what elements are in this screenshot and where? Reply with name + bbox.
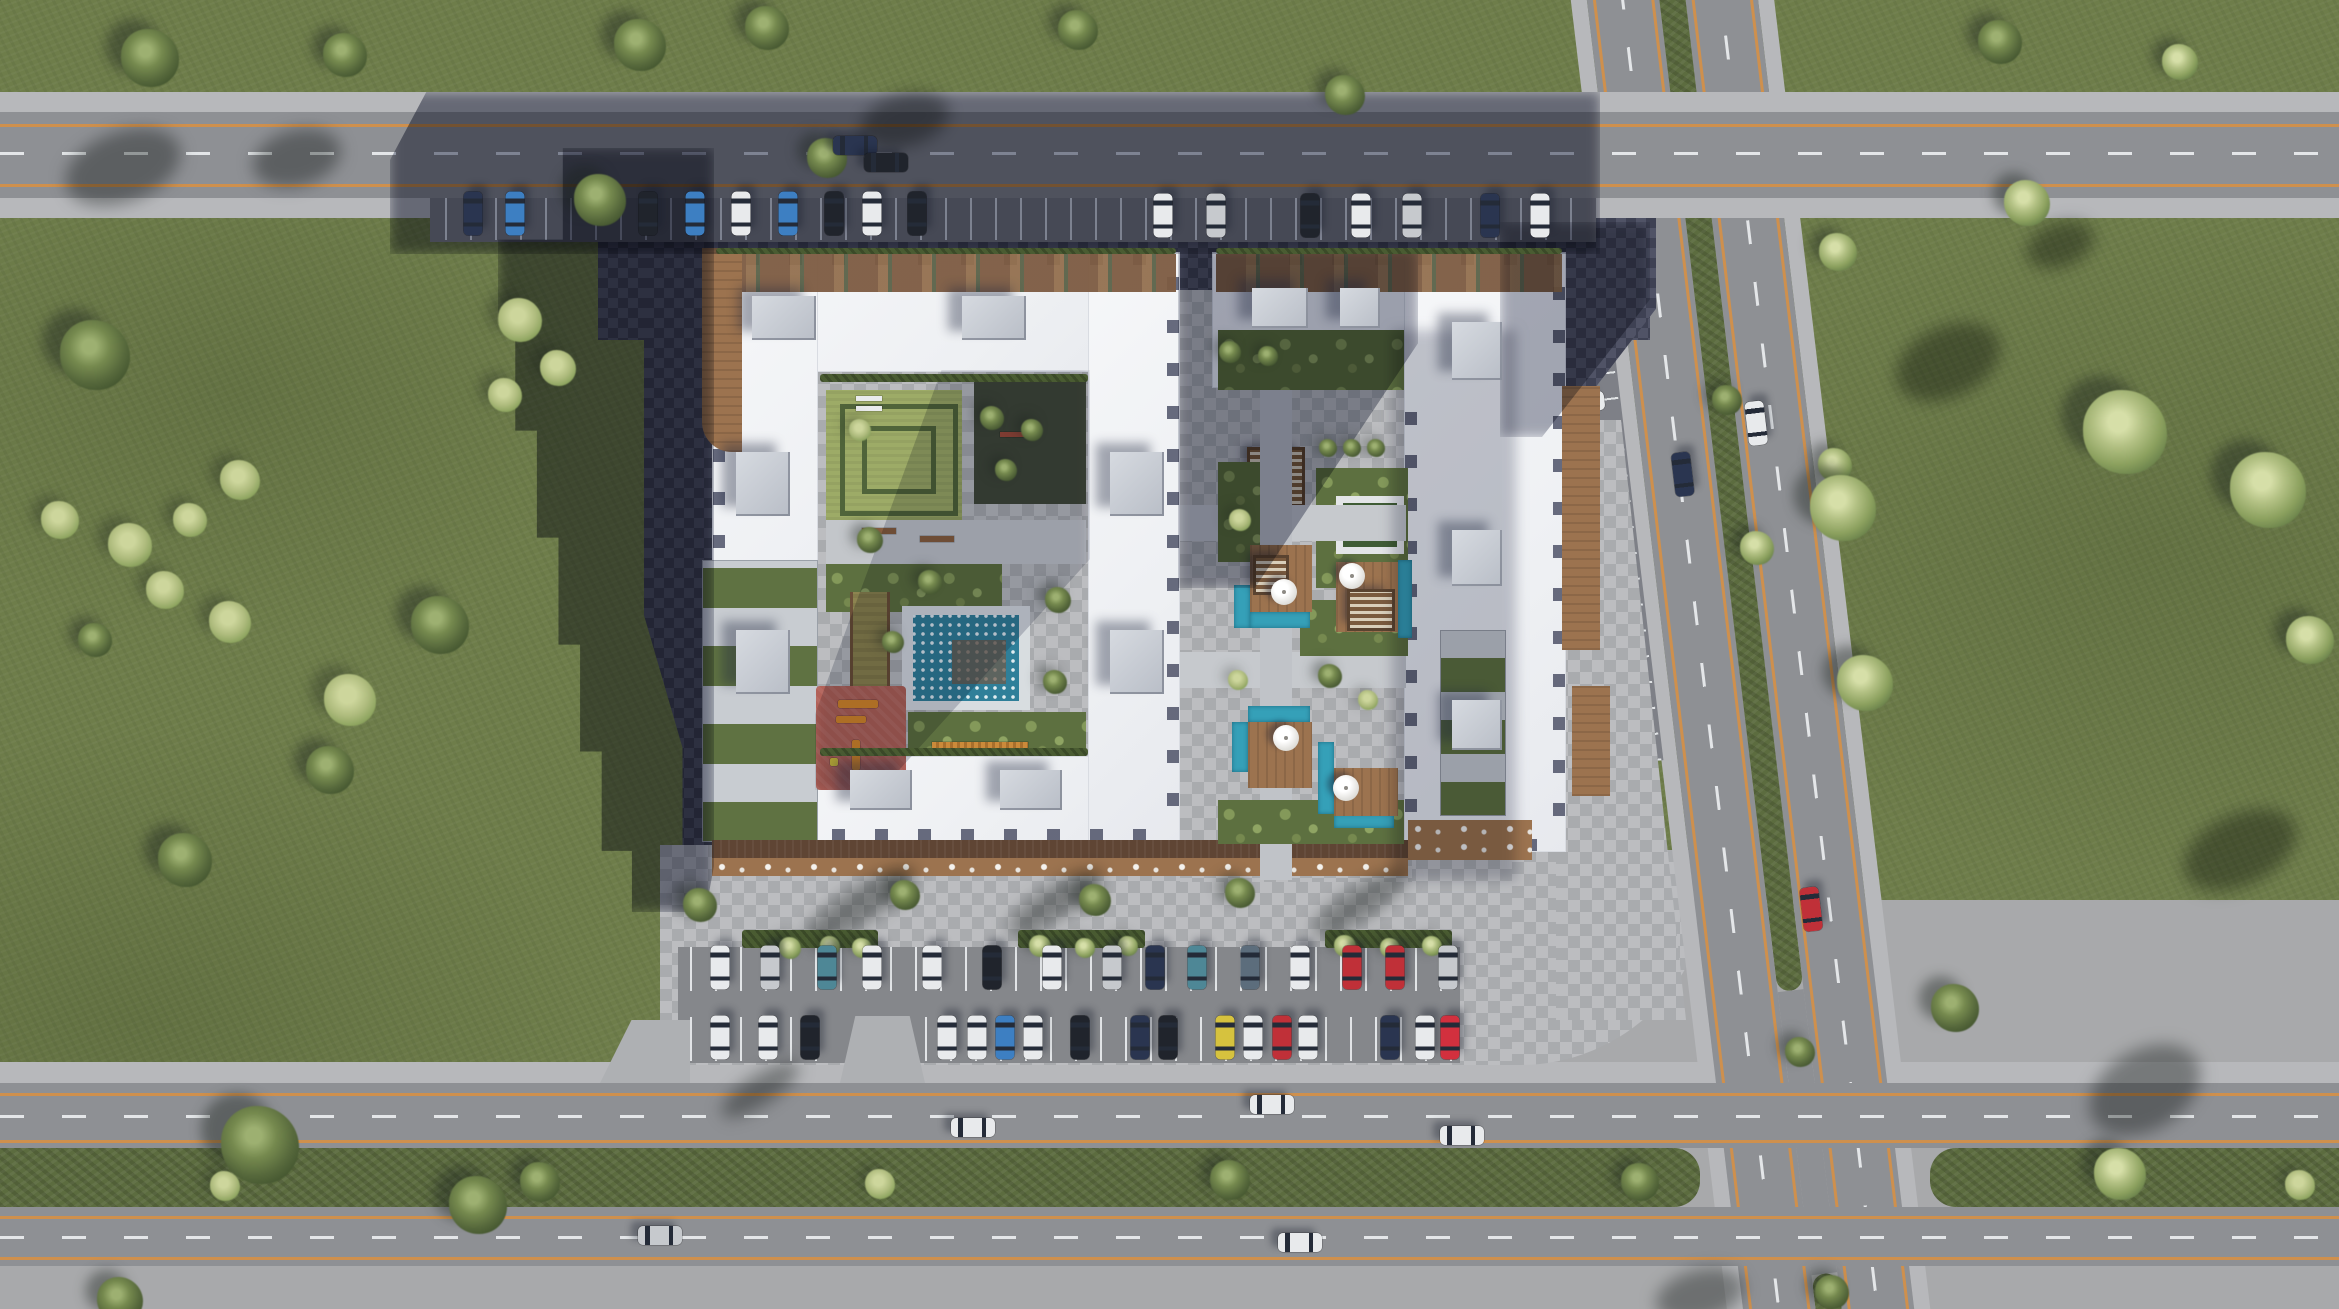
patio-pool [1318,742,1334,814]
bottom-pavement-strip [0,1266,2339,1309]
tree [60,320,130,390]
tree [2230,452,2306,528]
building-shadow-west [498,148,714,912]
left-building-north-terraces [716,254,1176,292]
car [1250,1095,1294,1114]
tree [1810,475,1876,541]
rooftop-bulkhead [1452,700,1502,750]
tree [2162,44,2198,80]
car [1207,194,1226,238]
rooftop-bulkhead [962,296,1026,340]
patio-umbrella [1339,563,1365,589]
bush [849,419,871,441]
tree [1819,233,1857,271]
car [863,946,882,990]
bush [108,523,152,567]
tree-shadow [1883,307,2012,417]
bush [540,350,576,386]
car [1381,1016,1400,1060]
tree [323,33,367,77]
rooftop-bulkhead [1110,452,1164,516]
bush [865,1169,895,1199]
car [825,192,844,236]
bush [41,501,79,539]
car [951,1118,995,1137]
car [639,192,658,236]
rooftop-bulkhead [1110,630,1164,694]
top-road-south-sidewalk-east [1596,198,2339,218]
rooftop-bulkhead [752,296,816,340]
tree [2094,1148,2146,1200]
tree [1210,1160,1250,1200]
car [1439,946,1458,990]
tree [1021,419,1043,441]
tree [78,623,112,657]
bush [2285,1170,2315,1200]
tree [1931,984,1979,1032]
car [1481,194,1500,238]
tree [1319,439,1337,457]
car [1291,946,1310,990]
lane-line [0,1257,2339,1260]
tree [1258,346,1278,366]
car [1386,946,1405,990]
car [863,192,882,236]
tree-shadow [2171,793,2309,907]
car [1071,1016,1090,1060]
car [1278,1233,1322,1252]
hedge-strip [820,374,1088,382]
tree [1978,20,2022,64]
rooftop-bulkhead [1000,770,1062,810]
tree [1325,75,1365,115]
bush [220,460,260,500]
patio-pergola [1350,592,1392,628]
rooftop-bulkhead [1452,322,1502,380]
bush [146,571,184,609]
car [1216,1016,1235,1060]
tree [2286,616,2334,664]
tree [1712,385,1742,415]
bush [324,674,376,726]
central-walk-lower [1180,652,1406,688]
patio-pool [1248,706,1310,722]
car [801,1016,820,1060]
tree [1043,670,1067,694]
car [983,946,1002,990]
car [761,946,780,990]
patio-umbrella [1271,579,1297,605]
car [1159,1016,1178,1060]
car [1103,946,1122,990]
tree [97,1277,143,1309]
patio-pool [1232,722,1248,772]
tree [1815,1275,1849,1309]
tree [121,29,179,87]
car [818,946,837,990]
car [1244,1016,1263,1060]
tree [1045,587,1071,613]
rooftop-bulkhead [736,452,790,516]
tree [683,888,717,922]
tree [158,833,212,887]
top-road-south-sidewalk [0,198,430,218]
east-deck-upper [1562,386,1600,650]
car [1273,1016,1292,1060]
car [686,192,705,236]
lane-dashes [0,1236,2339,1239]
bush [209,601,251,643]
tree [1621,1163,1659,1201]
rooftop-bulkhead [736,630,790,694]
patio-umbrella [1333,775,1359,801]
car [711,1016,730,1060]
tree [574,174,626,226]
car [464,192,483,236]
car [1131,1016,1150,1060]
south-sidewalk [0,1062,2339,1084]
tree [1837,655,1893,711]
car [1403,194,1422,238]
tree [2083,390,2167,474]
aerial-render [0,0,2339,1309]
lane-dashes [0,1115,2339,1118]
rooftop-bulkhead [850,770,912,810]
tree [1219,341,1241,363]
patio-pool [1234,585,1250,628]
bush [1228,670,1248,690]
garden-bench [856,406,882,411]
bush [488,378,522,412]
car [1343,946,1362,990]
car [1441,1016,1460,1060]
left-building-east-notches [1167,258,1179,836]
tree [1740,531,1774,565]
car [1024,1016,1043,1060]
tree [520,1162,560,1202]
tree [857,527,883,553]
tree [1343,439,1361,457]
car [732,192,751,236]
patio-umbrella [1273,725,1299,751]
tree [745,6,789,50]
tree [411,596,469,654]
hedge-strip [716,248,1176,254]
lane-line [0,1140,2339,1143]
tree [779,937,801,959]
bush [210,1171,240,1201]
car [1241,946,1260,990]
bush [1358,690,1378,710]
tree [980,406,1004,430]
car [938,1016,957,1060]
east-deck-lower [1572,686,1610,796]
bush [1229,509,1251,531]
central-court-shadow [1392,330,1516,880]
tree [1075,938,1095,958]
rooftop-bulkhead [1340,288,1380,328]
car [996,1016,1015,1060]
car [1440,1126,1484,1145]
tree [1785,1037,1815,1067]
car [759,1016,778,1060]
tree [614,19,666,71]
bush [498,298,542,342]
tree [1225,878,1255,908]
car [864,153,908,172]
south-deck-cafe [712,858,1408,876]
tree [995,459,1017,481]
tree [1318,664,1342,688]
tree [306,746,354,794]
car [1043,946,1062,990]
left-building-west-unit-gardens [702,560,818,842]
lane-line [0,1093,2339,1096]
car [1188,946,1207,990]
car [908,192,927,236]
car [1416,1016,1435,1060]
tree [1058,10,1098,50]
car [1531,194,1550,238]
tree [2004,180,2050,226]
lane-line [0,1216,2339,1219]
bush [173,503,207,537]
tree [890,880,920,910]
car [1301,194,1320,238]
car [506,192,525,236]
car [1154,194,1173,238]
car [638,1226,682,1245]
hedge-strip [820,748,1088,756]
patio-pool [1250,612,1310,628]
car [968,1016,987,1060]
patio-pool [1334,814,1394,828]
car [1146,946,1165,990]
car [923,946,942,990]
rooftop-bulkhead [1452,530,1502,586]
tree [1367,439,1385,457]
car [1352,194,1371,238]
car [711,946,730,990]
tree [1079,884,1111,916]
south-parking-apron-west [600,1020,690,1083]
rooftop-bulkhead [1252,288,1308,328]
tree [449,1176,507,1234]
tree [918,570,942,594]
car [1299,1016,1318,1060]
hedge-strip [1216,248,1562,254]
garden-bench [856,396,882,401]
tree [882,631,904,653]
car [779,192,798,236]
